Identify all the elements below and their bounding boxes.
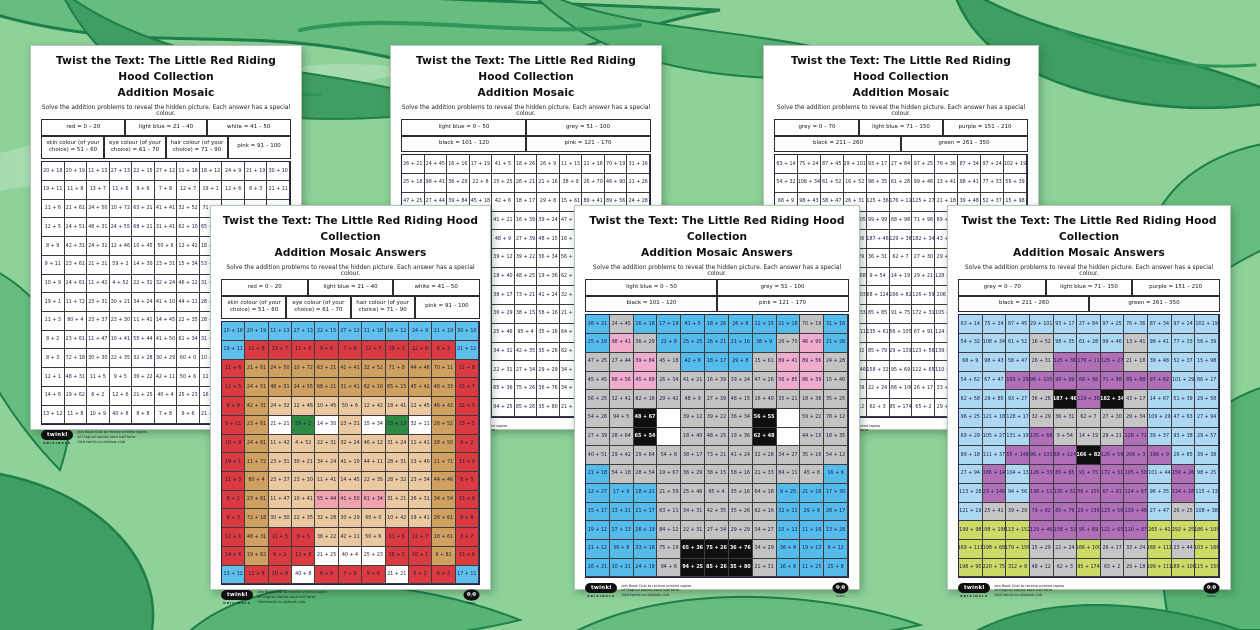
grid-cell: 12 + 7 bbox=[362, 341, 385, 360]
grid-cell: 179 + 156 bbox=[1006, 540, 1030, 559]
key-colour-entry: red = 0 – 20 bbox=[42, 120, 125, 136]
grid-cell: 11 + 6 bbox=[42, 200, 65, 219]
page-subtitle: Solve the addition problems to reveal th… bbox=[774, 105, 1028, 117]
grid-cell: 29 + 29 bbox=[729, 521, 753, 540]
grid-cell: 21 + 11 bbox=[456, 341, 479, 360]
grid-cell: 45 + 89 bbox=[634, 372, 658, 391]
grid-cell: 108 + 38 bbox=[1195, 503, 1219, 522]
grid-cell: 62 + 3 bbox=[867, 399, 890, 418]
addition-mosaic-grid: 63 + 1475 + 2487 + 4529 + 10193 + 1727 +… bbox=[958, 314, 1220, 578]
grid-cell: 24 + 50 bbox=[87, 200, 110, 219]
grid-cell: 16 + 40 bbox=[753, 390, 777, 409]
key-row: skin colour (of your choice) = 51 – 60ey… bbox=[42, 136, 290, 159]
grid-cell: 20 + 18 bbox=[222, 322, 245, 341]
grid-cell: 102 + 19 bbox=[1195, 315, 1219, 334]
grid-cell: 9 + 6 bbox=[132, 181, 155, 200]
grid-cell: 61 + 52 bbox=[821, 174, 844, 193]
grid-cell: 206 + 3 bbox=[1124, 446, 1148, 465]
grid-cell: 29 + 34 bbox=[1124, 409, 1148, 428]
grid-cell: 48 + 31 bbox=[245, 528, 268, 547]
page-title: Twist the Text: The Little Red Riding Ho… bbox=[221, 214, 480, 262]
grid-cell: 9 + 11 bbox=[222, 416, 245, 435]
grid-cell: 65 + 2 bbox=[1101, 559, 1125, 578]
grid-cell: 59 + 2 bbox=[110, 256, 133, 275]
grid-cell: 24 + 32 bbox=[269, 397, 292, 416]
grid-cell: 62 + 7 bbox=[890, 249, 913, 268]
grid-cell: 11 + 18 bbox=[177, 162, 200, 181]
grid-cell: 68 + 98 bbox=[890, 212, 913, 231]
grid-cell: 110 + 87 bbox=[1124, 521, 1148, 540]
grid-cell: 158 + 32 bbox=[867, 361, 890, 380]
grid-cell: 75 + 24 bbox=[983, 315, 1007, 334]
grid-cell: 21 + 19 bbox=[432, 322, 455, 341]
grid-cell: 67 + 91 bbox=[912, 324, 935, 343]
grid-cell: 172 + 31 bbox=[912, 305, 935, 324]
grid-cell: 108 + 196 bbox=[983, 521, 1007, 540]
grid-cell: 12 + 5 bbox=[42, 218, 65, 237]
grid-cell: 166 + 100 bbox=[1077, 540, 1101, 559]
grid-cell: 134 + 18 bbox=[1172, 484, 1196, 503]
grid-cell: 62 + 48 bbox=[753, 428, 777, 447]
grid-cell: 56 + 39 bbox=[1004, 174, 1027, 193]
grid-cell: 40 + 4 bbox=[155, 387, 178, 406]
grid-cell: 35 + 80 bbox=[729, 559, 753, 578]
grid-cell: 91 + 75 bbox=[890, 305, 913, 324]
grid-cell: 6 + 2 bbox=[87, 387, 110, 406]
grid-cell: 19 + 11 bbox=[222, 341, 245, 360]
grid-cell: 26 + 31 bbox=[1030, 353, 1054, 372]
grid-cell: 7 + 8 bbox=[155, 181, 178, 200]
grid-cell: 139 + 48 bbox=[1124, 503, 1148, 522]
grid-cell: 34 + 24 bbox=[315, 453, 338, 472]
grid-cell: 14 + 45 bbox=[339, 472, 362, 491]
grid-cell: 12 + 27 bbox=[586, 484, 610, 503]
grid-cell: 16 + 39 bbox=[515, 212, 538, 231]
grid-cell: 87 + 34 bbox=[958, 155, 981, 174]
twinkl-originals-logo: twinkl ORIGINALS bbox=[958, 583, 990, 598]
key-colour-entry: purple = 151 – 210 bbox=[1132, 280, 1219, 296]
twinkl-originals-logo: twinkl ORIGINALS bbox=[41, 430, 73, 445]
grid-cell: 23 + 37 bbox=[269, 472, 292, 491]
grid-cell: 48 + 15 bbox=[537, 230, 560, 249]
grid-cell: 32 + 28 bbox=[753, 446, 777, 465]
grid-cell: 22 + 24 bbox=[867, 380, 890, 399]
grid-cell: 25 + 18 bbox=[402, 174, 425, 193]
grid-cell: 15 + 12 bbox=[777, 521, 801, 540]
grid-cell: 41 + 50 bbox=[155, 331, 178, 350]
grid-cell: 19 + 1 bbox=[386, 341, 409, 360]
grid-cell: 99 + 99 bbox=[1054, 372, 1078, 391]
answers-label: Answers bbox=[1110, 247, 1165, 259]
grid-cell: 131 + 19 bbox=[1006, 428, 1030, 447]
grid-cell: 85 + 85 bbox=[1054, 465, 1078, 484]
grid-cell: 27 + 13 bbox=[110, 162, 133, 181]
grid-cell: 27 + 34 bbox=[705, 521, 729, 540]
grid-cell: 47 + 26 bbox=[753, 372, 777, 391]
grid-cell: 6 + 2 bbox=[269, 547, 292, 566]
grid-cell: 126 + 59 bbox=[1101, 446, 1125, 465]
resource-preview: Twist the Text: The Little Red Riding Ho… bbox=[0, 0, 1260, 630]
grid-cell: 125 + 27 bbox=[1101, 353, 1125, 372]
grid-cell: 15 + 34 bbox=[177, 256, 200, 275]
key-row: grey = 0 – 70light blue = 71 – 150purple… bbox=[959, 280, 1219, 296]
grid-cell: 79 + 82 bbox=[1030, 503, 1054, 522]
grid-cell: 108 + 34 bbox=[983, 334, 1007, 353]
grid-cell: 52 + 37 bbox=[1172, 353, 1196, 372]
grid-cell: 22 + 24 bbox=[1054, 540, 1078, 559]
grid-cell: 10 + 9 bbox=[87, 406, 110, 425]
grid-cell: 9 + 6 bbox=[315, 341, 338, 360]
grid-cell: 85 + 85 bbox=[867, 305, 890, 324]
grid-cell: 38 + 9 bbox=[560, 174, 583, 193]
grid-cell: 22 + 8 bbox=[470, 174, 493, 193]
grid-cell: 27 + 94 bbox=[959, 465, 983, 484]
grid-cell: 23 + 61 bbox=[245, 416, 268, 435]
grid-cell: 26 + 9 bbox=[537, 155, 560, 174]
grid-cell: 198 + 95 bbox=[959, 559, 983, 578]
grid-cell: 12 + 6 bbox=[292, 547, 315, 566]
grid-cell: 14 + 30 bbox=[315, 416, 338, 435]
grid-cell: 8 + 8 bbox=[315, 566, 338, 585]
grid-cell: 11 + 8 bbox=[456, 491, 479, 510]
grid-cell: 98 + 41 bbox=[1148, 334, 1172, 353]
grid-cell: 20 + 19 bbox=[245, 322, 268, 341]
grid-cell: 17 + 19 bbox=[657, 315, 681, 334]
grid-cell: 11 + 16 bbox=[800, 521, 824, 540]
grid-cell: 63 + 21 bbox=[315, 360, 338, 379]
grid-cell: 63 + 14 bbox=[959, 315, 983, 334]
addition-mosaic-grid: 20 + 1820 + 1911 + 1327 + 1322 + 1527 + … bbox=[221, 321, 480, 585]
grid-cell: 71 + 98 bbox=[912, 212, 935, 231]
grid-cell: 14 + 6 bbox=[42, 387, 65, 406]
grid-cell: 88 + 56 bbox=[610, 372, 634, 391]
grid-cell: 23 + 31 bbox=[269, 453, 292, 472]
grid-cell: 26 + 34 bbox=[657, 372, 681, 391]
grid-cell: 95 + 69 bbox=[890, 361, 913, 380]
grid-cell: 58 + 16 bbox=[729, 465, 753, 484]
grid-cell: 25 + 23 bbox=[362, 547, 385, 566]
grid-cell: 21 + 61 bbox=[245, 360, 268, 379]
grid-cell: 27 + 39 bbox=[705, 390, 729, 409]
grid-cell: 39 + 38 bbox=[1195, 446, 1219, 465]
grid-cell: 29 + 85 bbox=[983, 390, 1007, 409]
grid-cell: 265 + 41 bbox=[1148, 521, 1172, 540]
grid-cell: 19 + 1 bbox=[200, 181, 223, 200]
grid-cell: 186 + 14 bbox=[983, 465, 1007, 484]
grid-cell: 18 + 12 bbox=[386, 322, 409, 341]
key-row: red = 0 – 20light blue = 21 – 40white = … bbox=[222, 280, 479, 296]
grid-cell: 166 + 82 bbox=[890, 286, 913, 305]
grid-cell: 22 + 31 bbox=[315, 435, 338, 454]
grid-cell: 25 + 8 bbox=[824, 559, 848, 578]
grid-cell: 22 + 35 bbox=[362, 472, 385, 491]
grid-cell: 26 + 61 bbox=[432, 509, 455, 528]
grid-cell: 105 + 68 bbox=[1030, 428, 1054, 447]
grid-cell: 55 + 148 bbox=[1006, 446, 1030, 465]
grid-cell: 31 + 21 bbox=[386, 491, 409, 510]
grid-cell: 16 + 39 bbox=[705, 372, 729, 391]
grid-cell: 80 + 4 bbox=[245, 472, 268, 491]
grid-cell: 16 + 8 bbox=[777, 559, 801, 578]
key-colour-entry: eye colour (of your choice) = 61 – 70 bbox=[286, 296, 350, 319]
twinkl-logo-subtext: ORIGINALS bbox=[43, 441, 71, 445]
grid-cell: 11 + 71 bbox=[432, 453, 455, 472]
grid-cell: 54 + 26 bbox=[586, 409, 610, 428]
key-colour-entry: grey = 0 – 70 bbox=[775, 120, 859, 136]
grid-cell: 12 + 7 bbox=[177, 181, 200, 200]
grid-cell: 18 + 17 bbox=[705, 353, 729, 372]
grid-cell: 128 + 71 bbox=[1124, 428, 1148, 447]
key-colour-entry: white = 41 – 50 bbox=[207, 120, 290, 136]
key-row: black = 211 – 260green = 261 – 350 bbox=[775, 136, 1027, 152]
grid-cell: 15 + 40 bbox=[824, 372, 848, 391]
grid-cell: 129 + 36 bbox=[890, 230, 913, 249]
grid-cell: 25 + 25 bbox=[681, 334, 705, 353]
grid-cell: 34 + 27 bbox=[777, 446, 801, 465]
grid-cell: 42 + 11 bbox=[339, 528, 362, 547]
grid-cell: 11 + 6 bbox=[456, 547, 479, 566]
grid-cell: 9 + 81 bbox=[432, 547, 455, 566]
grid-cell: 13 + 40 bbox=[409, 453, 432, 472]
grid-cell: 29 + 42 bbox=[657, 390, 681, 409]
key-colour-entry: light blue = 21 – 40 bbox=[125, 120, 208, 136]
grid-cell: 98 + 41 bbox=[610, 334, 634, 353]
twinkl-logo-subtext: ORIGINALS bbox=[960, 594, 988, 598]
grid-cell: 28 + 54 bbox=[634, 465, 658, 484]
grid-cell: 22 + 35 bbox=[292, 509, 315, 528]
grid-cell: 36 + 29 bbox=[634, 334, 658, 353]
grid-cell: 36 + 22 bbox=[315, 528, 338, 547]
grid-cell: 16 + 16 bbox=[447, 155, 470, 174]
grid-cell: 18 + 61 bbox=[432, 528, 455, 547]
grid-cell: 36 + 76 bbox=[537, 380, 560, 399]
grid-cell: 16 + 2 bbox=[386, 547, 409, 566]
grid-cell: 39 + 24 bbox=[729, 372, 753, 391]
grid-cell: 11 + 15 bbox=[753, 315, 777, 334]
grid-cell: 50 + 6 bbox=[339, 397, 362, 416]
grid-cell: 10 + 45 bbox=[132, 237, 155, 256]
grid-cell: 45 + 18 bbox=[657, 353, 681, 372]
grid-cell: 96 + 25 bbox=[959, 409, 983, 428]
grid-cell: 26 + 70 bbox=[777, 334, 801, 353]
grid-cell: 99 + 99 bbox=[867, 212, 890, 231]
grid-cell: 30 + 21 bbox=[110, 293, 133, 312]
grid-cell: 182 + 34 bbox=[1101, 390, 1125, 409]
grid-cell: 85 + 79 bbox=[1054, 503, 1078, 522]
grid-cell: 182 + 34 bbox=[912, 230, 935, 249]
grid-cell: 41 + 21 bbox=[492, 212, 515, 231]
grid-cell: 61 + 28 bbox=[890, 174, 913, 193]
grid-cell: 11 + 8 bbox=[65, 406, 88, 425]
grid-cell: 11 + 72 bbox=[245, 453, 268, 472]
grid-cell: 102 + 19 bbox=[1004, 155, 1027, 174]
grid-cell: 47 + 63 bbox=[1172, 409, 1196, 428]
grid-cell: 7 + 8 bbox=[155, 406, 178, 425]
grid-cell: 22 + 35 bbox=[177, 312, 200, 331]
grid-cell: 101 + 29 bbox=[1172, 372, 1196, 391]
grid-cell: 8 + 8 bbox=[132, 406, 155, 425]
book-club-note: Join Book Club to receive printed copies… bbox=[994, 584, 1064, 598]
grid-cell: 27 + 44 bbox=[610, 353, 634, 372]
grid-cell: 121 + 19 bbox=[959, 503, 983, 522]
grid-cell: 40 + 8 bbox=[292, 566, 315, 585]
grid-cell: 68 + 98 bbox=[1077, 372, 1101, 391]
grid-cell: 94 + 5 bbox=[610, 409, 634, 428]
grid-cell: 29 + 21 bbox=[1101, 428, 1125, 447]
grid-cell: 35 + 26 bbox=[729, 503, 753, 522]
grid-cell: 76 + 36 bbox=[1124, 315, 1148, 334]
grid-cell: 128 + 17 bbox=[1006, 409, 1030, 428]
grid-cell: 23 + 30 bbox=[110, 312, 133, 331]
key-colour-entry: skin colour (of your choice) = 51 – 60 bbox=[42, 136, 104, 159]
grid-cell: 292 + 25 bbox=[1172, 521, 1196, 540]
grid-cell: 9 + 25 bbox=[777, 484, 801, 503]
grid-cell: 5 + 2 bbox=[409, 566, 432, 585]
grid-cell: 77 + 33 bbox=[981, 174, 1004, 193]
grid-cell: 12 + 42 bbox=[362, 397, 385, 416]
grid-cell: 11 + 42 bbox=[269, 435, 292, 454]
grid-cell: 16 + 16 bbox=[634, 315, 658, 334]
grid-cell: 27 + 12 bbox=[155, 162, 178, 181]
grid-cell: 87 + 45 bbox=[821, 155, 844, 174]
grid-cell: 32 + 28 bbox=[132, 349, 155, 368]
grid-cell: 54 + 8 bbox=[657, 446, 681, 465]
grid-cell: 43 + 17 bbox=[1124, 390, 1148, 409]
grid-cell: 84 + 11 bbox=[777, 465, 801, 484]
grid-cell: 28 + 31 bbox=[386, 453, 409, 472]
grid-cell: 63 + 14 bbox=[775, 155, 798, 174]
grid-cell: 48 + 31 bbox=[87, 218, 110, 237]
owl-icon bbox=[1203, 582, 1220, 594]
twinkl-logo-text: twinkl bbox=[41, 430, 73, 440]
grid-cell: 11 + 25 bbox=[800, 559, 824, 578]
grid-cell: 27 + 12 bbox=[339, 322, 362, 341]
grid-cell: 198 + 68 bbox=[983, 540, 1007, 559]
grid-cell: 29 + 101 bbox=[844, 155, 867, 174]
grid-cell: 42 + 31 bbox=[65, 237, 88, 256]
grid-cell: 32 + 52 bbox=[177, 200, 200, 219]
grid-cell: 99 + 46 bbox=[1101, 334, 1125, 353]
grid-cell: 29 + 8 bbox=[729, 353, 753, 372]
grid-cell: 30 + 30 bbox=[87, 349, 110, 368]
grid-cell: 29 + 64 bbox=[634, 446, 658, 465]
grid-cell: 62 + 58 bbox=[959, 390, 983, 409]
grid-cell: 108 + 34 bbox=[798, 174, 821, 193]
grid-cell: 7 + 8 bbox=[339, 566, 362, 585]
key-colour-entry: green = 261 – 350 bbox=[901, 136, 1027, 152]
grid-cell: 176 + 11 bbox=[890, 193, 913, 212]
grid-cell: 48 + 33 bbox=[432, 378, 455, 397]
grid-cell: 14 + 67 bbox=[1148, 390, 1172, 409]
grid-cell: 89 + 88 bbox=[1124, 372, 1148, 391]
grid-cell: 44 + 11 bbox=[362, 453, 385, 472]
grid-cell: 65 + 15 bbox=[386, 378, 409, 397]
grid-cell: 34 + 24 bbox=[132, 293, 155, 312]
grid-cell: 23 + 61 bbox=[245, 491, 268, 510]
key-colour-entry: black = 211 – 260 bbox=[959, 296, 1089, 312]
grid-cell: 34 + 27 bbox=[753, 521, 777, 540]
grid-cell: 29 + 8 bbox=[537, 193, 560, 212]
grid-cell: 105 + 27 bbox=[983, 428, 1007, 447]
grid-cell: 29 + 101 bbox=[1030, 315, 1054, 334]
grid-cell: 89 + 56 bbox=[800, 353, 824, 372]
grid-cell: 42 + 35 bbox=[705, 503, 729, 522]
answers-label: Answers bbox=[371, 247, 426, 259]
page-title: Twist the Text: The Little Red Riding Ho… bbox=[401, 54, 651, 102]
grid-cell: 9 + 5 bbox=[292, 528, 315, 547]
grid-cell: 36 + 29 bbox=[447, 174, 470, 193]
grid-cell: 65 + 54 bbox=[634, 428, 658, 447]
grid-cell: 27 + 94 bbox=[1195, 409, 1219, 428]
grid-cell: 169 + 29 bbox=[1006, 372, 1030, 391]
twinkl-logo-text: twinkl bbox=[958, 583, 990, 593]
grid-cell: 97 + 24 bbox=[1172, 315, 1196, 334]
grid-cell: 15 + 61 bbox=[753, 353, 777, 372]
grid-cell: 8 + 7 bbox=[456, 528, 479, 547]
grid-cell: 27 + 47 bbox=[1148, 503, 1172, 522]
grid-cell: 56 + 105 bbox=[1077, 484, 1101, 503]
grid-cell: 89 + 18 bbox=[959, 446, 983, 465]
grid-cell: 28 + 32 bbox=[386, 472, 409, 491]
grid-cell: 50 + 6 bbox=[155, 237, 178, 256]
grid-cell: 70 + 19 bbox=[800, 315, 824, 334]
grid-cell: 40 + 4 bbox=[339, 547, 362, 566]
grid-cell: 9 + 12 bbox=[824, 540, 848, 559]
grid-cell: 4 + 52 bbox=[110, 275, 133, 294]
grid-cell: 10 + 9 bbox=[42, 275, 65, 294]
grid-cell: 59 + 22 bbox=[800, 409, 824, 428]
grid-cell: 12 + 42 bbox=[177, 237, 200, 256]
grid-cell: 10 + 41 bbox=[292, 491, 315, 510]
grid-cell: 126 + 59 bbox=[912, 286, 935, 305]
owl-icon bbox=[832, 582, 849, 594]
grid-cell: 35 + 16 bbox=[729, 484, 753, 503]
page-title: Twist the Text: The Little Red Riding Ho… bbox=[774, 54, 1028, 102]
grid-cell: 39 + 22 bbox=[515, 249, 538, 268]
grid-cell: 41 + 41 bbox=[155, 200, 178, 219]
grid-cell: 30 + 30 bbox=[269, 509, 292, 528]
key-row: grey = 0 – 70light blue = 71 – 150purple… bbox=[775, 120, 1027, 136]
grid-cell: 18 + 36 bbox=[800, 390, 824, 409]
grid-cell: 96 + 103 bbox=[1030, 446, 1054, 465]
grid-cell: 56 + 25 bbox=[586, 390, 610, 409]
grid-cell: 10 + 21 bbox=[610, 559, 634, 578]
grid-cell: 47 + 25 bbox=[586, 353, 610, 372]
grid-cell: 25 + 18 bbox=[586, 334, 610, 353]
grid-cell: 25 + 25 bbox=[492, 174, 515, 193]
grid-cell: 312 + 8 bbox=[1006, 559, 1030, 578]
grid-cell: 10 + 41 bbox=[110, 331, 133, 350]
grid-cell: 6 + 3 bbox=[432, 341, 455, 360]
grid-cell: 105 + 58 bbox=[1124, 465, 1148, 484]
grid-cell: 32 + 11 bbox=[409, 416, 432, 435]
grid-cell: 21 + 18 bbox=[586, 465, 610, 484]
grid-cell: 11 + 13 bbox=[87, 162, 110, 181]
page-subtitle: Solve the addition problems to reveal th… bbox=[958, 265, 1220, 277]
page-answers-riding-hood: Twist the Text: The Little Red Riding Ho… bbox=[210, 205, 491, 590]
grid-cell: 98 + 35 bbox=[867, 174, 890, 193]
grid-cell: 63 + 11 bbox=[657, 503, 681, 522]
grid-cell: 18 + 12 bbox=[200, 162, 223, 181]
grid-cell: 97 + 82 bbox=[1148, 372, 1172, 391]
grid-cell: 24 + 9 bbox=[409, 322, 432, 341]
grid-cell: 62 + 10 bbox=[177, 218, 200, 237]
grid-cell: 34 + 31 bbox=[492, 343, 515, 362]
grid-cell: 44 + 46 bbox=[432, 472, 455, 491]
grid-cell: 85 + 79 bbox=[867, 343, 890, 362]
key-colour-entry: red = 0 – 20 bbox=[222, 280, 308, 296]
grid-cell: 111 + 37 bbox=[983, 446, 1007, 465]
